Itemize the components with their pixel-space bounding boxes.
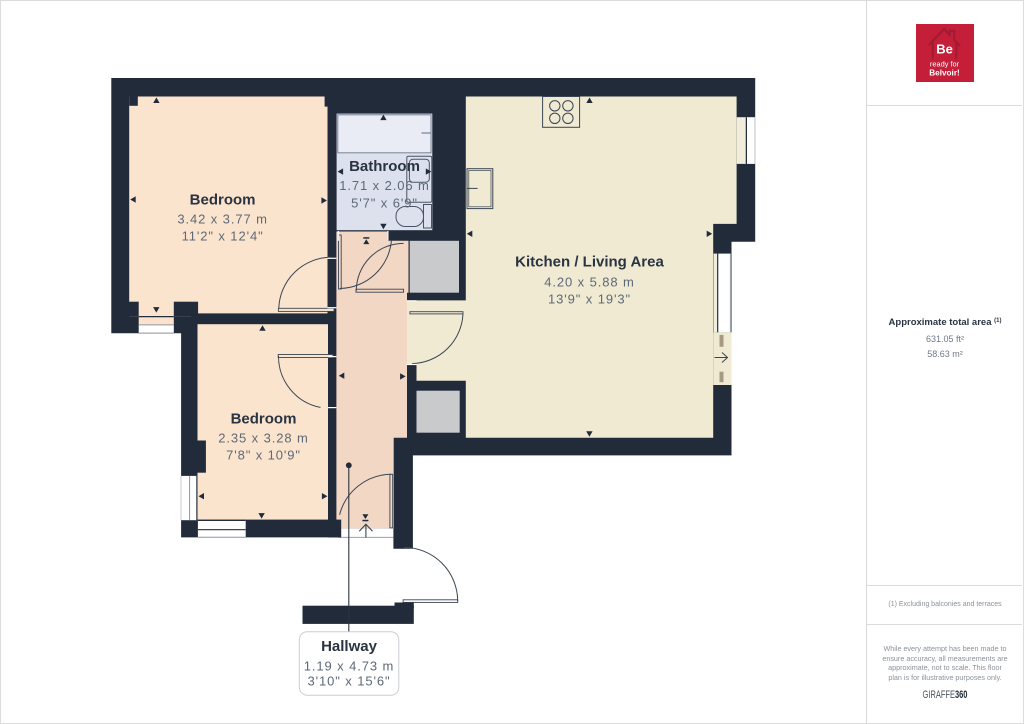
svg-text:3.42 x 3.77 m: 3.42 x 3.77 m	[177, 212, 267, 227]
svg-text:4.20 x 5.88 m: 4.20 x 5.88 m	[544, 275, 634, 290]
svg-text:2.35 x 3.28 m: 2.35 x 3.28 m	[218, 431, 308, 446]
svg-text:Belvoir!: Belvoir!	[929, 69, 959, 78]
svg-text:7'8" x 10'9": 7'8" x 10'9"	[226, 447, 301, 462]
svg-text:Hallway: Hallway	[321, 638, 378, 655]
svg-text:Bedroom: Bedroom	[231, 411, 297, 428]
svg-text:Be: Be	[936, 42, 953, 57]
svg-text:3'10" x 15'6": 3'10" x 15'6"	[308, 674, 391, 689]
svg-text:5'7" x 6'9": 5'7" x 6'9"	[351, 196, 418, 211]
svg-text:11'2" x 12'4": 11'2" x 12'4"	[182, 228, 264, 243]
svg-text:Bathroom: Bathroom	[349, 158, 420, 175]
svg-text:1.71 x 2.06 m: 1.71 x 2.06 m	[339, 178, 429, 193]
svg-text:Bedroom: Bedroom	[190, 192, 256, 209]
svg-text:13'9" x 19'3": 13'9" x 19'3"	[548, 292, 631, 307]
svg-text:Kitchen / Living Area: Kitchen / Living Area	[515, 254, 664, 271]
svg-text:1.19 x 4.73 m: 1.19 x 4.73 m	[304, 658, 394, 673]
svg-text:ready for: ready for	[930, 60, 960, 69]
